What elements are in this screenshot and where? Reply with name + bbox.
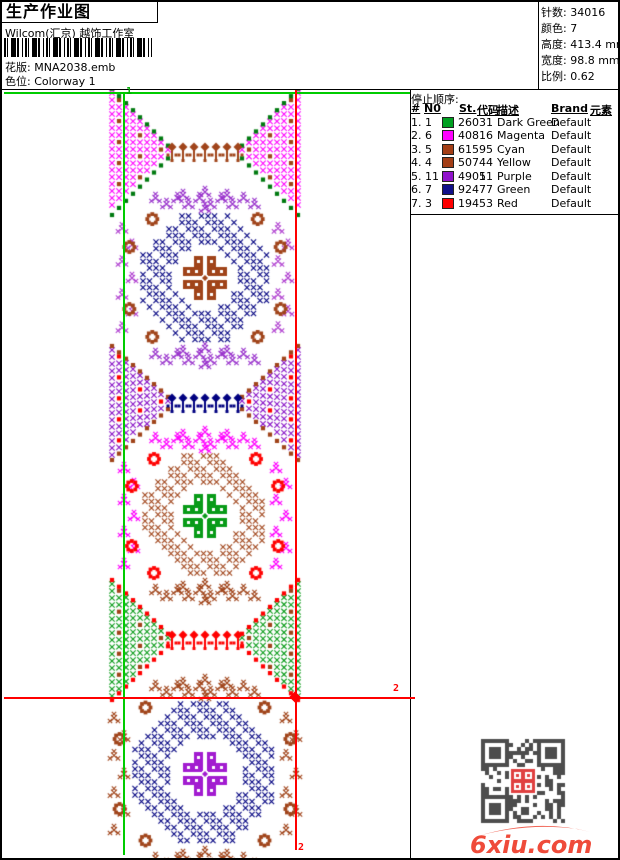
red-horizontal-guide xyxy=(4,697,415,699)
cell-no: 3. 5 xyxy=(411,143,432,156)
qr-code-icon xyxy=(480,738,566,824)
column-header: St. xyxy=(459,102,476,115)
guide-label: 1 xyxy=(126,86,132,97)
sequence-row: 4. 45074YellowDefault4 xyxy=(411,156,616,170)
cell-desc: Yellow xyxy=(497,156,531,169)
cell-desc: Green xyxy=(497,183,530,196)
color-swatch xyxy=(442,171,454,182)
svg-text:6xiu.com: 6xiu.com xyxy=(470,831,592,859)
table-bottom-line xyxy=(410,214,618,215)
cell-brand: Default xyxy=(551,116,591,129)
color-swatch xyxy=(442,198,454,209)
cell-brand: Default xyxy=(551,183,591,196)
cell-code: 11 xyxy=(469,170,493,183)
cell-desc: Cyan xyxy=(497,143,525,156)
cell-no: 7. 3 xyxy=(411,197,432,210)
cell-code: 1 xyxy=(469,116,493,129)
cell-no: 4. 4 xyxy=(411,156,432,169)
sequence-row: 7. 31945RedDefault3 xyxy=(411,197,616,211)
colorway-label: 色位: xyxy=(5,75,31,88)
cell-desc: Purple xyxy=(497,170,532,183)
cell-no: 6. 7 xyxy=(411,183,432,196)
cell-code: 7 xyxy=(469,183,493,196)
green-top-guide xyxy=(4,92,410,94)
cell-no: 1. 1 xyxy=(411,116,432,129)
color-swatch xyxy=(442,157,454,168)
colorway-field: 色位: Colorway 1 xyxy=(5,73,96,89)
cell-brand: Default xyxy=(551,170,591,183)
sequence-row: 5. 114905PurpleDefault11 xyxy=(411,170,616,184)
cell-brand: Default xyxy=(551,156,591,169)
sequence-header-row: #N0St.代码描述Brand元素 xyxy=(411,102,616,115)
cell-code: 5 xyxy=(469,143,493,156)
cell-brand: Default xyxy=(551,143,591,156)
cell-code: 3 xyxy=(469,197,493,210)
stats-panel: 针数: 34016 颜色: 7 高度: 413.4 mm 宽度: 98.8 mm… xyxy=(541,5,620,85)
cell-desc: Magenta xyxy=(497,129,545,142)
cell-code: 6 xyxy=(469,129,493,142)
logo-6xiu: 6xiu.com xyxy=(468,820,593,860)
color-swatch xyxy=(442,144,454,155)
green-vertical-guide xyxy=(123,92,125,855)
column-header: Brand xyxy=(551,102,588,115)
stats-divider xyxy=(538,2,539,89)
cell-brand: Default xyxy=(551,129,591,142)
sequence-row: 1. 12603Dark GreenDefault1 xyxy=(411,116,616,130)
cell-code: 4 xyxy=(469,156,493,169)
cell-desc: Red xyxy=(497,197,518,210)
cell-brand: Default xyxy=(551,197,591,210)
color-swatch xyxy=(442,130,454,141)
guide-label: 2 xyxy=(393,683,399,694)
red-vertical-guide xyxy=(295,90,297,850)
sequence-row: 2. 64081MagentaDefault6 xyxy=(411,129,616,143)
page-title: 生产作业图 xyxy=(2,2,158,23)
header-bottom-line xyxy=(2,89,618,90)
colorway-value: Colorway 1 xyxy=(34,75,95,88)
color-swatch xyxy=(442,117,454,128)
barcode-icon xyxy=(4,38,152,57)
column-header: # xyxy=(411,102,420,115)
cell-no: 2. 6 xyxy=(411,129,432,142)
color-swatch xyxy=(442,184,454,195)
guide-label: 2 xyxy=(298,842,304,853)
sequence-row: 6. 79247GreenDefault7 xyxy=(411,183,616,197)
production-worksheet-page: 生产作业图 Wilcom(汇京) 越饰工作室 花版: MNA2038.emb 色… xyxy=(0,0,620,860)
column-header: N0 xyxy=(424,102,441,115)
sequence-row: 3. 56159CyanDefault5 xyxy=(411,143,616,157)
cell-no: 5. 11 xyxy=(411,170,439,183)
